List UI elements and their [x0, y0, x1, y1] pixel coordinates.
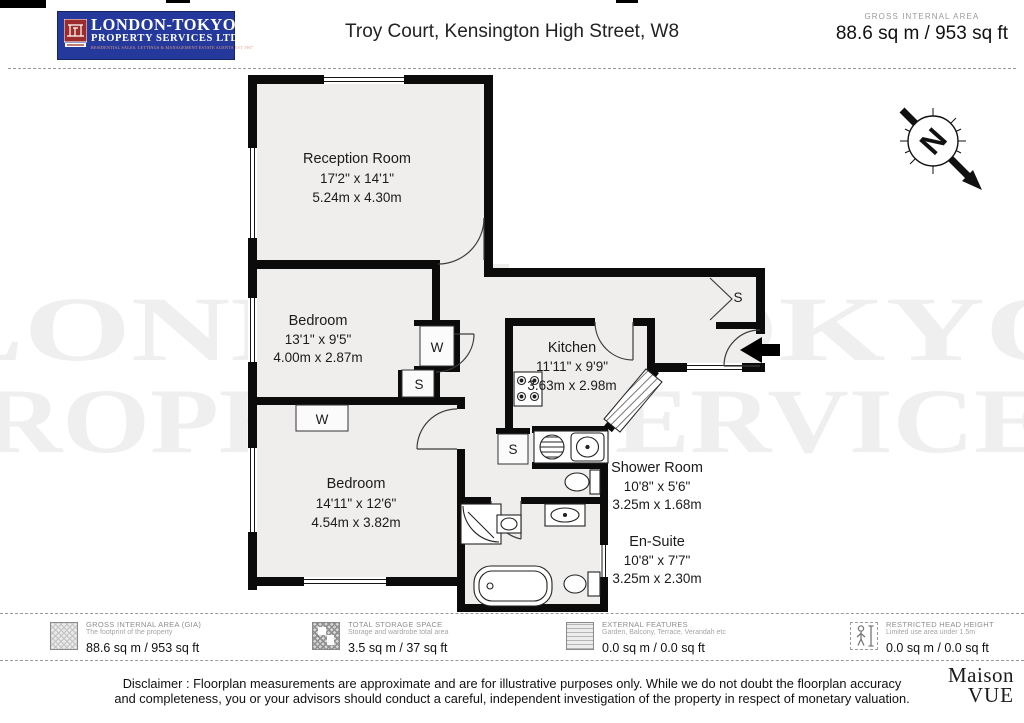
legend-subtitle: The footprint of the property — [86, 629, 201, 638]
legend-subtitle: Storage and wardrobe total area — [348, 629, 448, 638]
legend-item-gia: GROSS INTERNAL AREA (GIA) The footprint … — [50, 616, 201, 657]
restricted-head-height-icon — [850, 622, 878, 650]
legend-value: 3.5 sq m / 37 sq ft — [348, 641, 448, 657]
person-measure-icon — [853, 624, 875, 648]
closet-label-storage: S — [733, 290, 742, 305]
legend-value: 88.6 sq m / 953 sq ft — [86, 641, 201, 657]
room-dim-metric: 3.25m x 2.30m — [612, 571, 701, 586]
legend-title: TOTAL STORAGE SPACE — [348, 620, 448, 629]
legend-title: EXTERNAL FEATURES — [602, 620, 726, 629]
room-dim-imperial: 10'8" x 5'6" — [624, 479, 691, 494]
legend-subtitle: Garden, Balcony, Terrace, Verandah etc — [602, 629, 726, 638]
closet-label-storage: S — [414, 377, 423, 392]
room-name: Shower Room — [611, 460, 703, 476]
closet-label-storage: S — [508, 442, 517, 457]
legend-text-storage: TOTAL STORAGE SPACE Storage and wardrobe… — [348, 616, 448, 657]
room-name: Kitchen — [548, 340, 596, 356]
legend-subtitle: Limited use area under 1.5m — [886, 629, 994, 638]
legend-item-head-height: RESTRICTED HEAD HEIGHT Limited use area … — [850, 616, 994, 657]
brand-line2: VUE — [948, 686, 1014, 706]
disclaimer-line1: Disclaimer : Floorplan measurements are … — [0, 676, 1024, 691]
room-dim-imperial: 13'1" x 9'5" — [285, 332, 352, 347]
room-dim-metric: 5.24m x 4.30m — [312, 190, 401, 205]
room-dim-metric: 4.00m x 2.87m — [273, 350, 362, 365]
storage-hatch-icon — [312, 622, 340, 650]
room-name: Reception Room — [303, 151, 411, 167]
room-label-shower-room: Shower Room 10'8" x 5'6" 3.25m x 1.68m — [611, 460, 703, 512]
legend-text-external: EXTERNAL FEATURES Garden, Balcony, Terra… — [602, 616, 726, 657]
legend-value: 0.0 sq m / 0.0 sq ft — [886, 641, 994, 657]
utility-fixtures — [534, 431, 608, 463]
floorplan-page: { "header": { "logo_line1": "LONDON-TOKY… — [0, 0, 1024, 723]
room-dim-imperial: 10'8" x 7'7" — [624, 553, 691, 568]
room-dim-metric: 3.25m x 1.68m — [612, 497, 701, 512]
closet-label-wardrobe: W — [316, 412, 329, 427]
room-dim-imperial: 17'2" x 14'1" — [320, 171, 394, 186]
legend-text-gia: GROSS INTERNAL AREA (GIA) The footprint … — [86, 616, 201, 657]
room-dim-imperial: 11'11" x 9'9" — [536, 359, 608, 374]
legend-text-head-height: RESTRICTED HEAD HEIGHT Limited use area … — [886, 616, 994, 657]
floorplan-svg: LONDON-TOKYO PROPERTY SERVICES — [0, 0, 1024, 723]
maison-vue-logo: Maison VUE — [948, 666, 1014, 706]
legend-item-storage: TOTAL STORAGE SPACE Storage and wardrobe… — [312, 616, 448, 657]
legend-top-divider — [0, 613, 1024, 614]
legend-item-external: EXTERNAL FEATURES Garden, Balcony, Terra… — [566, 616, 726, 657]
gia-hatch-icon — [50, 622, 78, 650]
external-features-hatch-icon — [566, 622, 594, 650]
room-name: En-Suite — [629, 534, 685, 550]
closet-label-wardrobe: W — [431, 340, 444, 355]
room-dim-metric: 4.54m x 3.82m — [311, 515, 400, 530]
legend-title: RESTRICTED HEAD HEIGHT — [886, 620, 994, 629]
room-dim-metric: 3.63m x 2.98m — [527, 378, 616, 393]
compass-icon: N — [900, 108, 982, 190]
disclaimer: Disclaimer : Floorplan measurements are … — [0, 676, 1024, 706]
room-label-ensuite: En-Suite 10'8" x 7'7" 3.25m x 2.30m — [612, 534, 701, 586]
room-name: Bedroom — [327, 476, 386, 492]
legend-title: GROSS INTERNAL AREA (GIA) — [86, 620, 201, 629]
room-dim-imperial: 14'11" x 12'6" — [316, 496, 397, 511]
room-name: Bedroom — [289, 313, 348, 329]
disclaimer-line2: and completeness, you or your advisors s… — [0, 691, 1024, 706]
legend-bottom-divider — [0, 660, 1024, 661]
legend-value: 0.0 sq m / 0.0 sq ft — [602, 641, 726, 657]
